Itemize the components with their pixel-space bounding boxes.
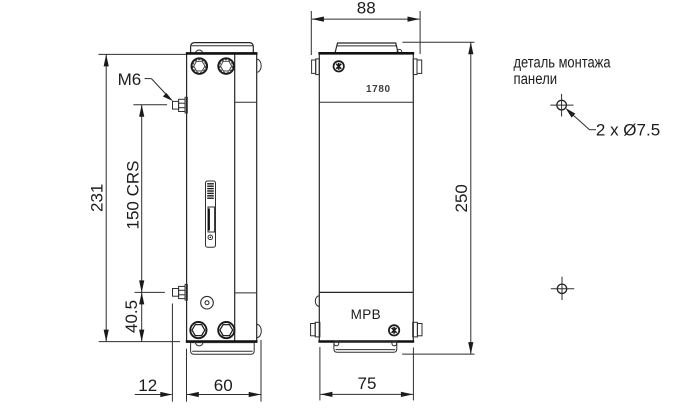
svg-text:231: 231 (88, 184, 107, 212)
svg-text:деталь монтажа: деталь монтажа (514, 54, 611, 71)
svg-text:150 CRS: 150 CRS (124, 161, 143, 230)
svg-text:88: 88 (357, 0, 376, 17)
svg-text:2 x Ø7.5: 2 x Ø7.5 (596, 120, 660, 139)
svg-text:панели: панели (514, 71, 558, 88)
svg-text:60: 60 (214, 376, 233, 395)
svg-text:1780: 1780 (366, 84, 391, 95)
svg-text:75: 75 (358, 374, 377, 393)
svg-text:250: 250 (452, 184, 471, 212)
svg-text:12: 12 (138, 376, 157, 395)
svg-text:MPB: MPB (351, 307, 381, 322)
svg-text:40.5: 40.5 (122, 300, 141, 333)
svg-text:M6: M6 (118, 70, 142, 89)
